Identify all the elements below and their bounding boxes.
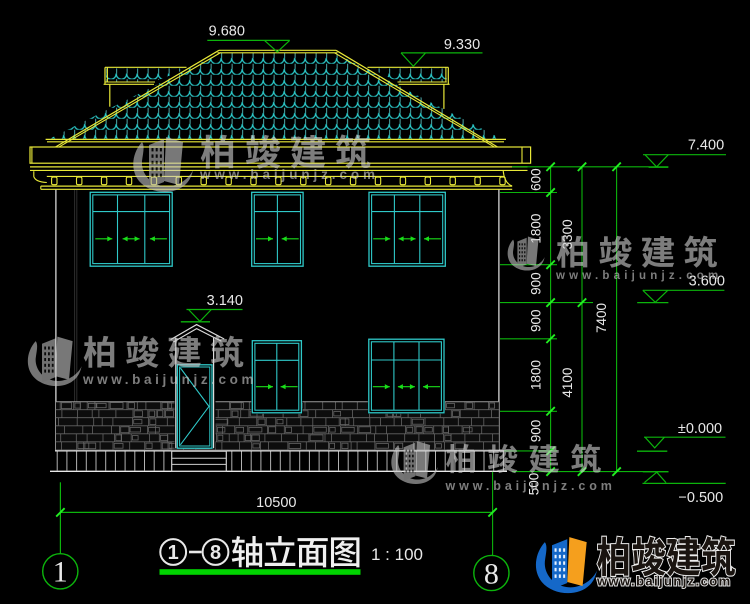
svg-text:1: 1 [53,556,68,589]
svg-text:600: 600 [529,168,544,191]
svg-text:1800: 1800 [529,360,544,390]
svg-text:−0.500: −0.500 [678,490,723,506]
svg-text:9.680: 9.680 [209,23,245,39]
svg-text:3.140: 3.140 [207,293,243,309]
svg-text:8: 8 [484,558,499,591]
svg-text:900: 900 [529,309,544,332]
svg-text:7400: 7400 [594,303,609,333]
svg-text:±0.000: ±0.000 [678,421,722,437]
svg-text:www.baijunjz.com: www.baijunjz.com [445,479,616,493]
svg-text:8: 8 [210,542,221,564]
svg-text:www.baijunjz.com: www.baijunjz.com [555,270,722,282]
svg-text:900: 900 [529,420,544,443]
svg-text:1: 1 [168,542,179,564]
svg-text:10500: 10500 [256,495,296,511]
svg-text:9.330: 9.330 [444,37,480,53]
svg-text:4100: 4100 [560,368,575,398]
svg-text:www.baijunjz.com: www.baijunjz.com [199,167,379,182]
svg-text:1 : 100: 1 : 100 [371,545,423,564]
svg-text:900: 900 [529,272,544,295]
svg-text:www.baijunjz.com: www.baijunjz.com [596,574,732,589]
svg-text:www.baijunjz.com: www.baijunjz.com [82,372,257,387]
svg-text:7.400: 7.400 [688,137,724,153]
